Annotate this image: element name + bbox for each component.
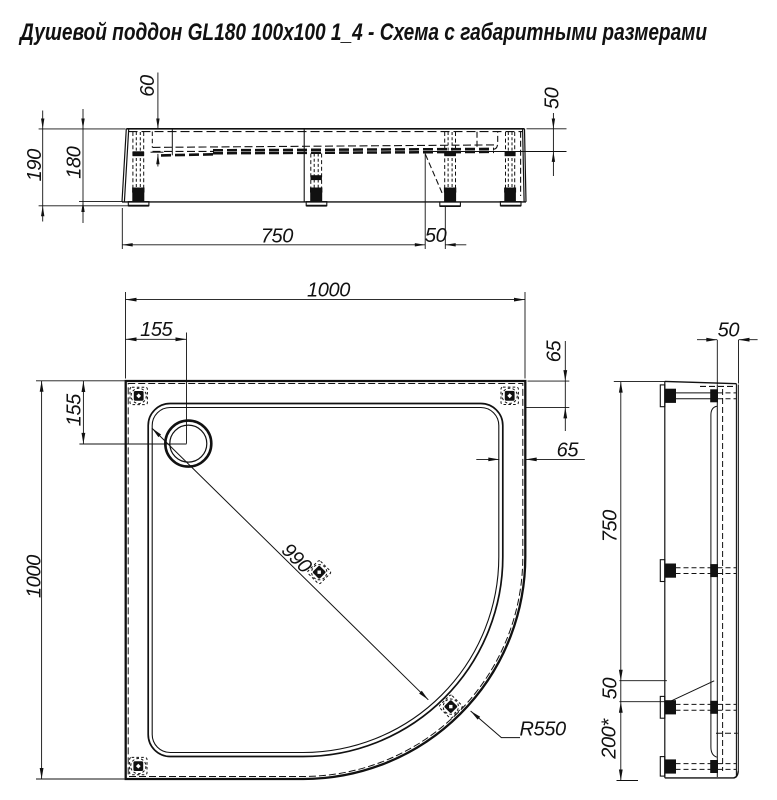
svg-text:180: 180: [64, 146, 86, 178]
svg-text:50: 50: [599, 678, 621, 700]
svg-text:50: 50: [542, 87, 564, 109]
svg-text:200*: 200*: [598, 718, 620, 760]
svg-text:Душевой поддон GL180 100x100: Душевой поддон GL180 100x100 1_4 - Схема…: [18, 19, 707, 46]
svg-text:155: 155: [140, 319, 173, 341]
svg-text:1000: 1000: [23, 555, 45, 598]
svg-text:50: 50: [718, 320, 740, 342]
svg-text:60: 60: [137, 75, 159, 97]
svg-text:65: 65: [557, 439, 580, 461]
svg-text:155: 155: [64, 393, 86, 426]
svg-text:190: 190: [24, 149, 46, 181]
svg-text:65: 65: [543, 340, 565, 363]
svg-text:750: 750: [261, 225, 293, 247]
svg-text:1000: 1000: [307, 279, 350, 301]
svg-text:990: 990: [277, 539, 316, 577]
svg-text:R550: R550: [520, 719, 566, 741]
svg-text:750: 750: [599, 510, 621, 542]
svg-text:50: 50: [425, 225, 447, 247]
